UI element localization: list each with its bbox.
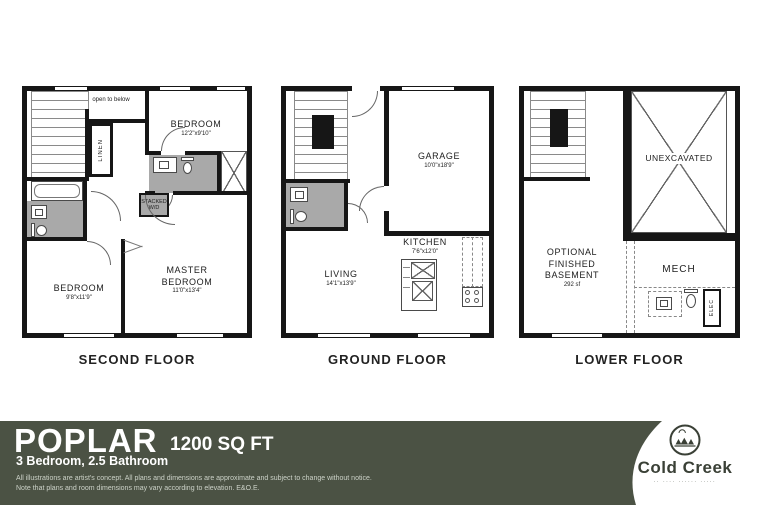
bedroom-left-label: BEDROOM 9'8"x11'9" [35,283,123,302]
window [402,86,454,91]
door-arc [87,241,111,265]
toilet-fixture [295,211,307,222]
wall [524,177,590,181]
island-sink [411,262,435,279]
window [318,333,370,338]
ground-floor-plan: GARAGE 10'0"x18'9" LIVING 14'1"x13'9" KI… [281,86,494,338]
cold-creek-emblem-icon [668,423,702,457]
toilet-fixture [686,294,696,308]
room-dims: 12'2"x9'10" [145,131,247,139]
disclaimer-line-1: All illustrations are artist's concept. … [16,474,372,484]
mech-label: MECH [631,263,727,276]
disclaimer-line-2: Note that plans and room dimensions may … [16,484,372,494]
window [177,333,223,338]
sink-basin [295,191,304,199]
garage-wall [384,91,389,186]
builder-logo: Cold Creek ·· ···· ······ ····· [610,421,760,505]
window [217,86,245,91]
island-shelf-line [403,267,410,268]
open-to-below-label: open to below [89,97,133,104]
disclaimer: All illustrations are artist's concept. … [16,474,372,494]
room-dims: 11'0"x13'4" [131,288,243,296]
room-dims: 7'6"x12'0" [381,249,469,257]
bed-bath-specs: 3 Bedroom, 2.5 Bathroom [16,454,168,468]
toilet-fixture [183,162,192,174]
door-arc [359,186,384,211]
sink-basin [660,300,668,307]
room-name: LIVING [296,269,386,281]
room-name: FINISHED [524,259,620,271]
window [55,86,87,91]
room-name: BEDROOM [145,119,247,131]
closet-door-line [123,246,142,254]
lower-floor-caption: LOWER FLOOR [519,352,740,367]
door-arc [145,195,175,225]
basement-label: OPTIONAL FINISHED BASEMENT 292 sf [524,247,620,290]
lower-floor-plan: UNEXCAVATED OPTIONAL FINISHED BASEMENT 2… [519,86,740,338]
stair-core-wall [550,109,568,147]
burner-icon [474,290,479,295]
room-dims: 14'1"x13'9" [296,281,386,289]
living-label: LIVING 14'1"x13'9" [296,269,386,288]
electrical-panel: ELEC [703,289,721,327]
door-arc [352,91,378,117]
sink-basin [35,209,43,216]
toilet-tank [31,223,35,237]
wall [83,177,87,241]
counter-cabinet-line [472,237,473,287]
toilet-tank [290,209,294,224]
brand-tagline: ·· ···· ······ ····· [610,479,760,485]
room-name: BASEMENT [524,270,620,282]
toilet-tank [181,157,194,161]
window [552,333,602,338]
linen-label: LINEN [98,139,104,162]
room-name: BEDROOM [131,277,243,289]
burner-icon [465,290,470,295]
room-area: 292 sf [524,282,620,290]
island-shelf-line [403,277,410,278]
master-bedroom-label: MASTER BEDROOM 11'0"x13'4" [131,265,243,296]
room-dims: 10'0"x18'9" [389,163,489,171]
burner-icon [474,298,479,303]
garage-label: GARAGE 10'0"x18'9" [389,151,489,170]
stairs [31,91,89,177]
room-name: GARAGE [389,151,489,163]
room-name: MASTER [131,265,243,277]
room-name: MECH [631,263,727,276]
toilet-tank [684,289,698,293]
island-cooktop [412,281,433,301]
room-dims: 9'8"x11'9" [35,295,123,303]
bedroom-right-label: BEDROOM 12'2"x9'10" [145,119,247,138]
room-name: UNEXCAVATED [644,153,713,164]
window [418,333,470,338]
stair-core-wall [312,115,334,149]
kitchen-label: KITCHEN 7'6"x12'0" [381,237,469,256]
sink-fixture [159,161,169,169]
window [160,86,190,91]
brand-name: Cold Creek [610,458,760,478]
square-footage: 1200 SQ FT [170,434,274,456]
wall [27,237,87,241]
builder-logo-panel: Cold Creek ·· ···· ······ ····· [590,421,760,505]
door-arc [91,191,121,221]
shower-fixture [221,151,247,195]
unexcavated-label: UNEXCAVATED [631,153,727,164]
island-shelf-line [403,287,410,288]
roughin-wall-line [626,241,627,333]
linen-closet: LINEN [89,123,113,177]
room-name: KITCHEN [381,237,469,249]
burner-icon [465,298,470,303]
roughin-wall-line [634,287,735,288]
window [64,333,114,338]
garage-wall [384,231,489,236]
bathtub-fixture [31,181,83,201]
wall [623,91,631,241]
room-name: OPTIONAL [524,247,620,259]
second-floor-plan: open to below LINEN STACKED W/D BEDROOM … [22,86,252,338]
wall [623,233,735,241]
room-name: BEDROOM [35,283,123,295]
elec-label: ELEC [709,299,715,316]
wall [173,191,247,195]
toilet-fixture [36,225,47,236]
wall [286,227,348,231]
second-floor-caption: SECOND FLOOR [22,352,252,367]
ground-floor-caption: GROUND FLOOR [281,352,494,367]
bathtub-inner [34,184,80,198]
